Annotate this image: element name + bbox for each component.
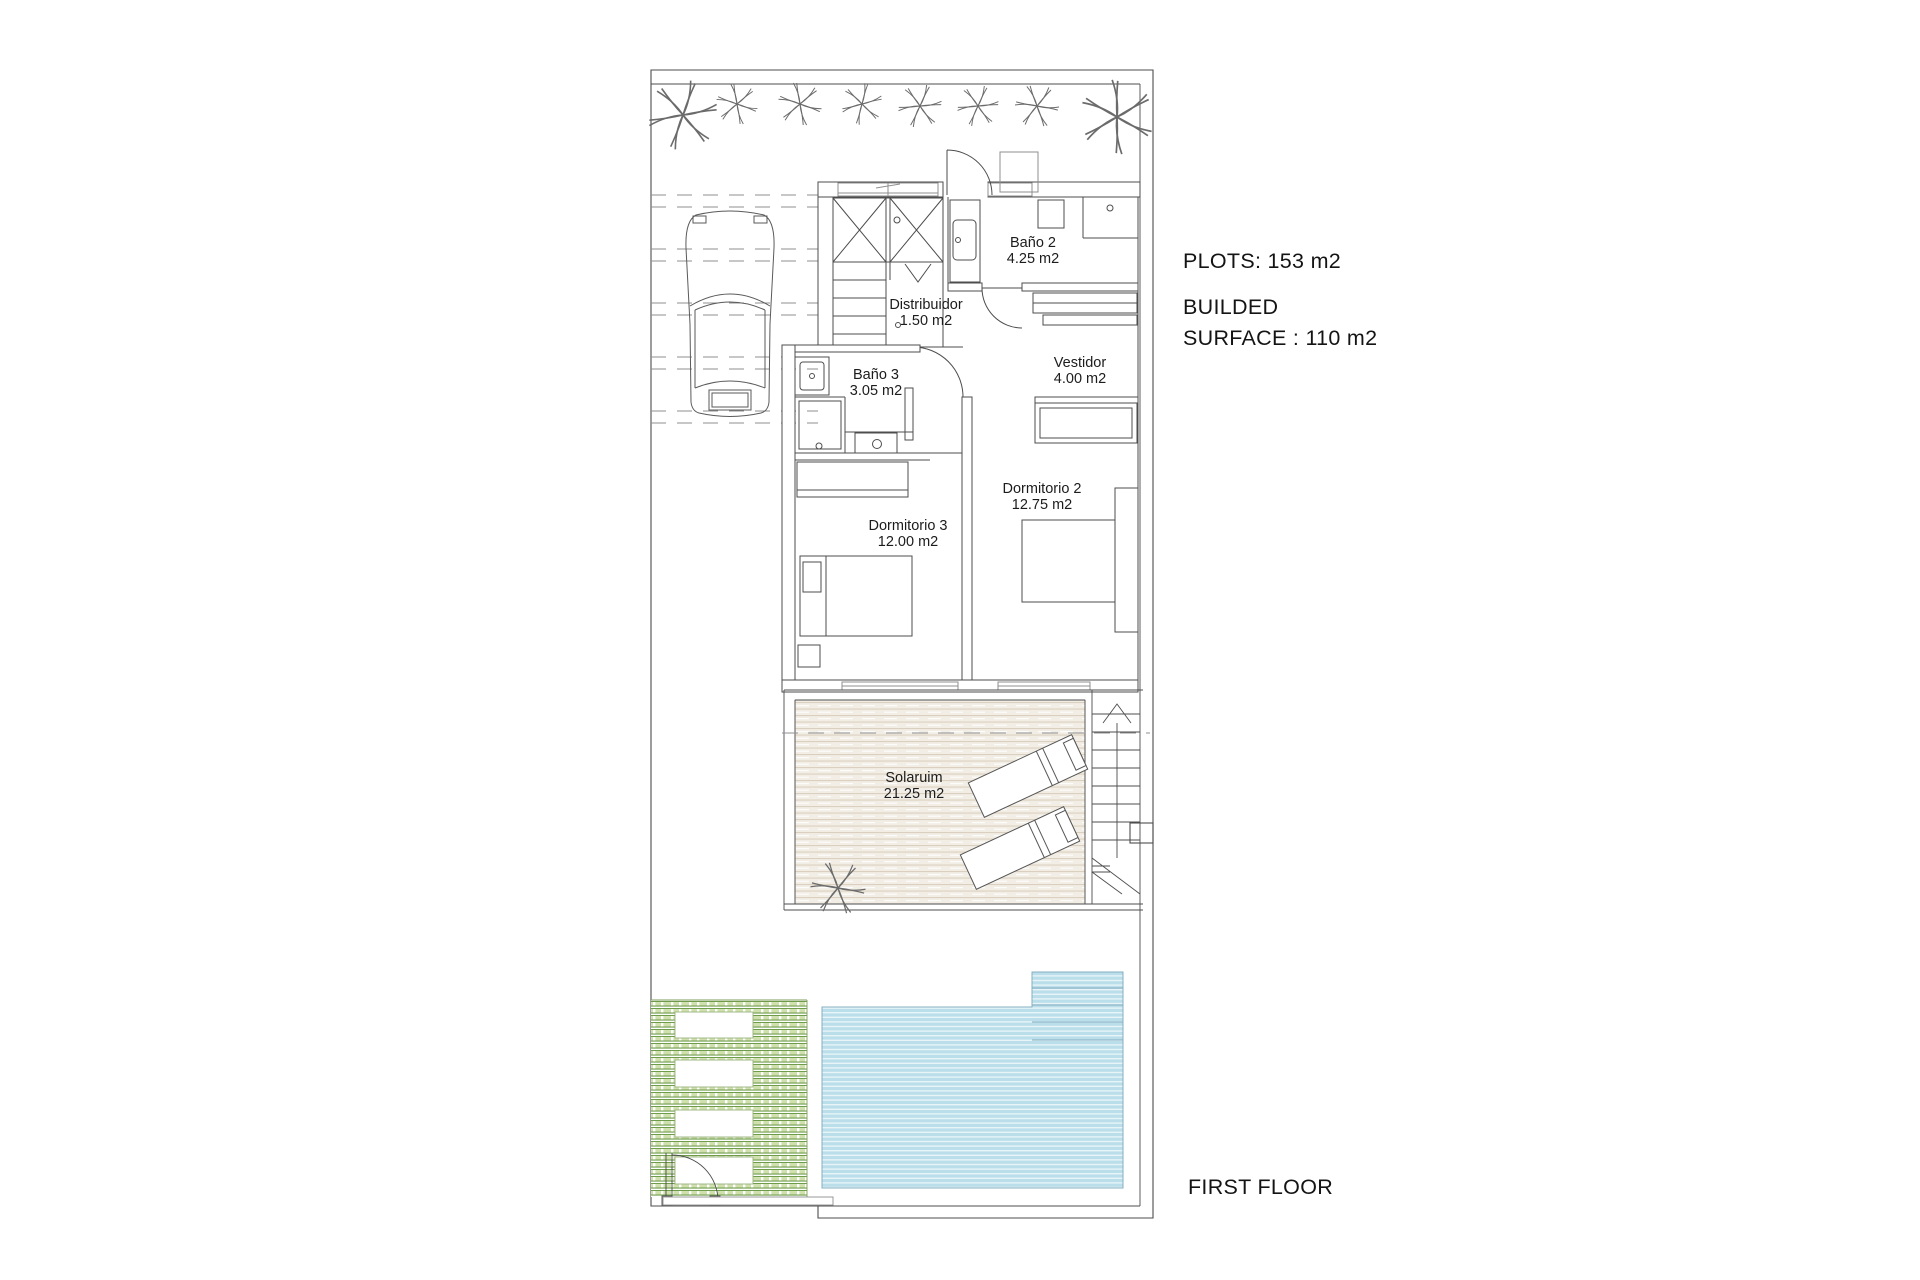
bathroom2-door (982, 288, 1022, 328)
exterior-stairs (1092, 704, 1140, 894)
bathroom3-vanity (795, 357, 829, 395)
plot-size-annotation: PLOTS: 153 m2 (1183, 246, 1341, 277)
stairs-up-arrow (1103, 704, 1131, 858)
palm-tree-icon (1009, 77, 1066, 135)
bathroom3-shower (795, 397, 845, 453)
walkway (663, 1197, 833, 1205)
palm-trees (645, 74, 1157, 160)
wardrobe (1115, 488, 1138, 632)
car (686, 211, 774, 417)
toilet (855, 433, 897, 453)
bathroom3 (795, 345, 962, 460)
palm-tree-icon (774, 76, 827, 131)
floor-title: FIRST FLOOR (1188, 1172, 1333, 1203)
room-label-distribuidor: Distribuidor 1.50 m2 (889, 297, 962, 329)
closet (1035, 403, 1137, 443)
bed (800, 556, 912, 636)
floor-plan-page: Baño 2 4.25 m2 Distribuidor 1.50 m2 Baño… (0, 0, 1920, 1280)
palm-tree-icon (835, 78, 889, 130)
palm-tree-icon (1077, 74, 1157, 160)
room-label-dormitorio2: Dormitorio 2 12.75 m2 (1003, 481, 1082, 513)
hall-door (913, 347, 963, 397)
palm-tree-icon (645, 75, 721, 156)
palm-tree-icon (950, 78, 1007, 135)
palm-tree-icon (895, 80, 945, 133)
bedroom2-furniture (1022, 397, 1138, 632)
room-label-bano2: Baño 2 4.25 m2 (1007, 235, 1059, 267)
canopy-window (838, 183, 1032, 196)
room-label-solaruim: Solaruim 21.25 m2 (884, 770, 944, 802)
room-label-vestidor: Vestidor 4.00 m2 (1054, 355, 1106, 387)
bathtub (1038, 200, 1064, 228)
closet (797, 462, 908, 497)
swimming-pool (822, 972, 1123, 1188)
garden (651, 1000, 833, 1205)
room-label-dormitorio3: Dormitorio 3 12.00 m2 (869, 518, 948, 550)
bed (1022, 520, 1115, 602)
pillow (803, 562, 821, 592)
shower-drain (1107, 205, 1113, 211)
vestidor-wardrobes (1033, 293, 1137, 325)
nightstand (798, 645, 820, 667)
floor-plan-drawing (0, 0, 1920, 1280)
built-surface-annotation: BUILDED SURFACE : 110 m2 (1183, 292, 1377, 354)
room-label-bano3: Baño 3 3.05 m2 (850, 367, 902, 399)
house (782, 150, 1140, 692)
bathroom2-vanity (950, 200, 980, 282)
bedroom3-furniture (797, 462, 912, 667)
solarium (782, 690, 1150, 924)
shower-partition (1083, 197, 1138, 238)
